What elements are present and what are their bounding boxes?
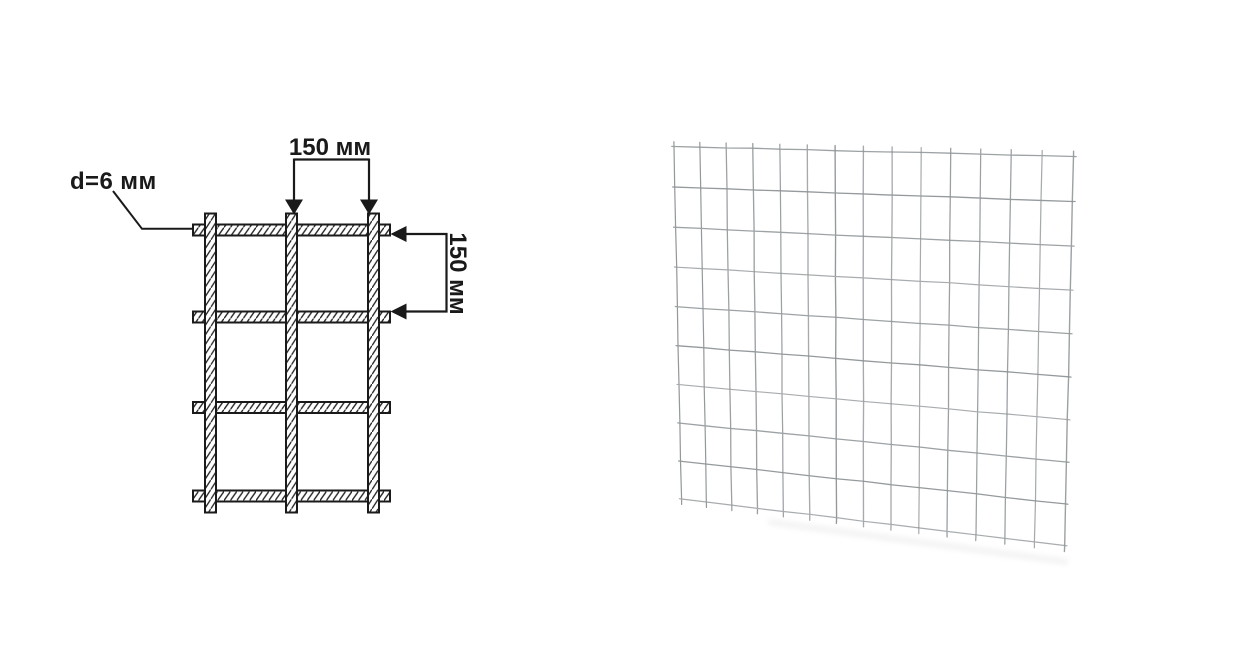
svg-text:150 мм: 150 мм	[444, 232, 471, 314]
svg-text:150 мм: 150 мм	[289, 134, 371, 161]
